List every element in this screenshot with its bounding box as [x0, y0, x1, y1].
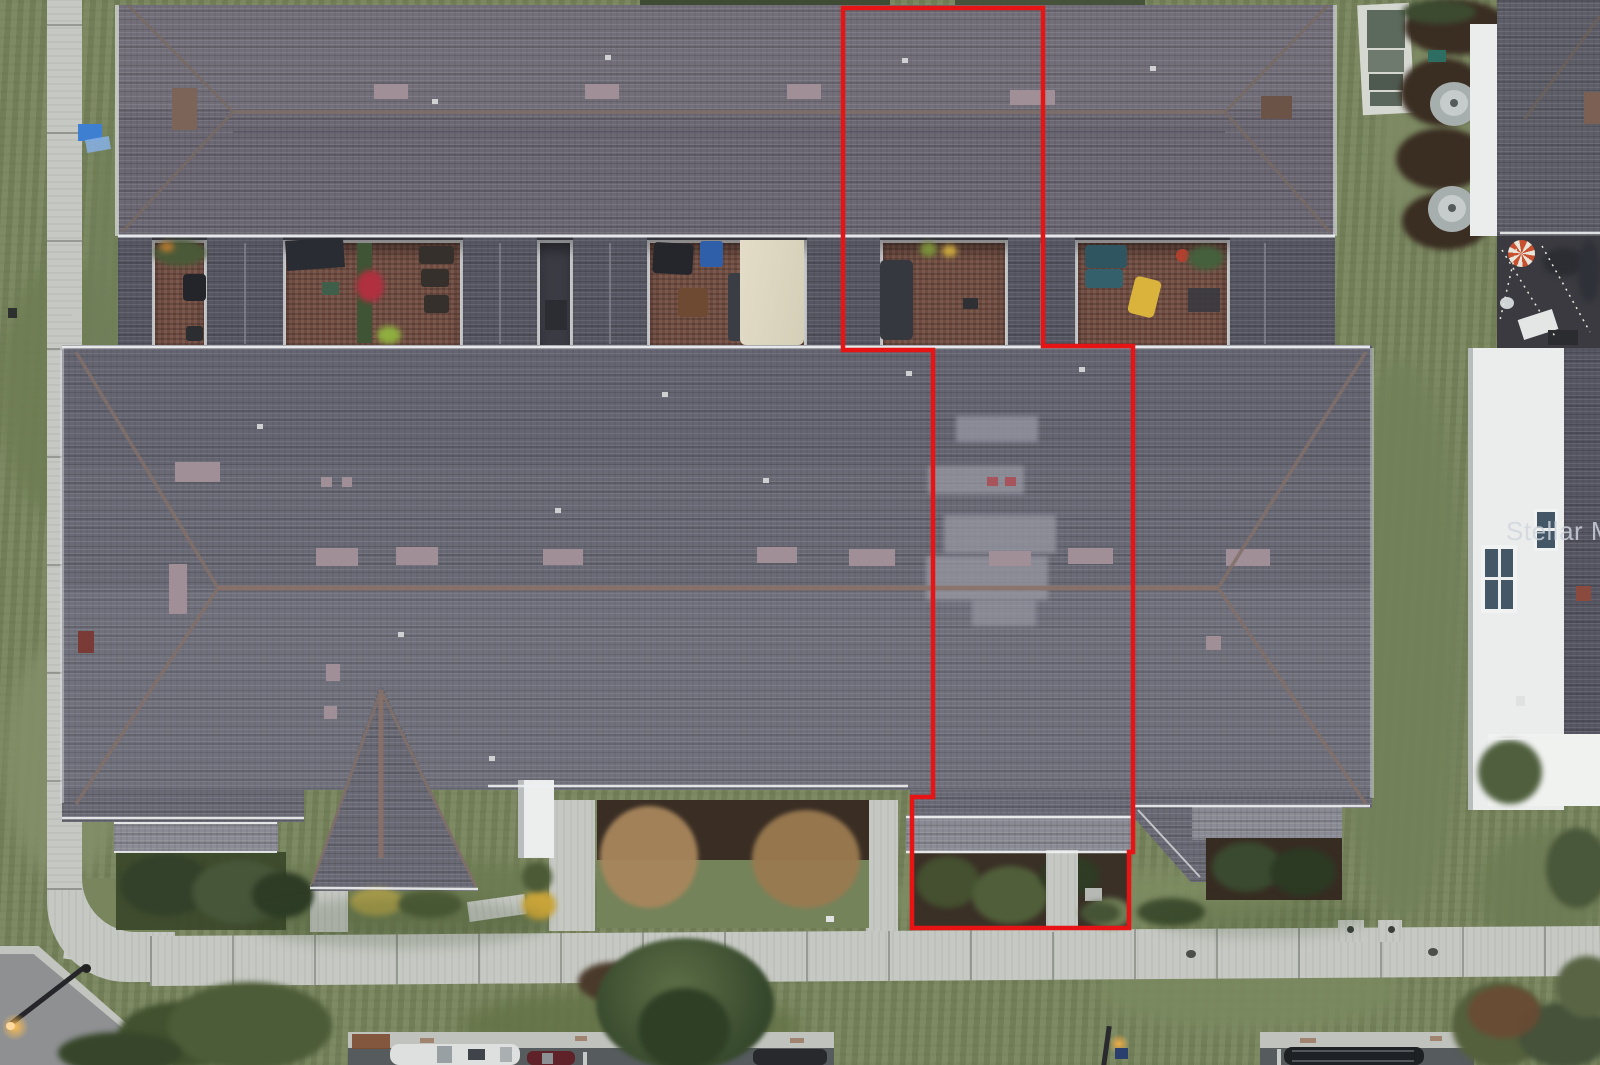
main-roof-hip: [1218, 588, 1366, 804]
right-roof-hip: [1524, 16, 1600, 120]
main-roof-hip: [76, 588, 218, 804]
wing-eave-gutter: [310, 888, 478, 889]
aerial-photo-townhomes: Stellar MLS: [0, 0, 1600, 1065]
top-roof-hip: [122, 112, 233, 232]
right-hip-eave: [1138, 810, 1200, 877]
wing-hip: [312, 690, 381, 884]
string-lights: [1500, 242, 1518, 320]
main-roof-hip: [1218, 352, 1366, 588]
property-outline: [843, 8, 1133, 928]
wing-hip: [381, 690, 476, 887]
string-lights: [1542, 246, 1590, 332]
top-roof-hip: [1225, 112, 1330, 232]
top-roof-hip: [128, 5, 233, 112]
roof-lines-overlay: [0, 0, 1600, 1065]
top-roof-hip: [1225, 5, 1328, 112]
main-roof-hip: [76, 352, 218, 588]
mls-watermark: Stellar MLS: [1506, 516, 1600, 547]
right-porch-gutter: [1488, 737, 1600, 739]
string-lights: [1502, 250, 1556, 338]
